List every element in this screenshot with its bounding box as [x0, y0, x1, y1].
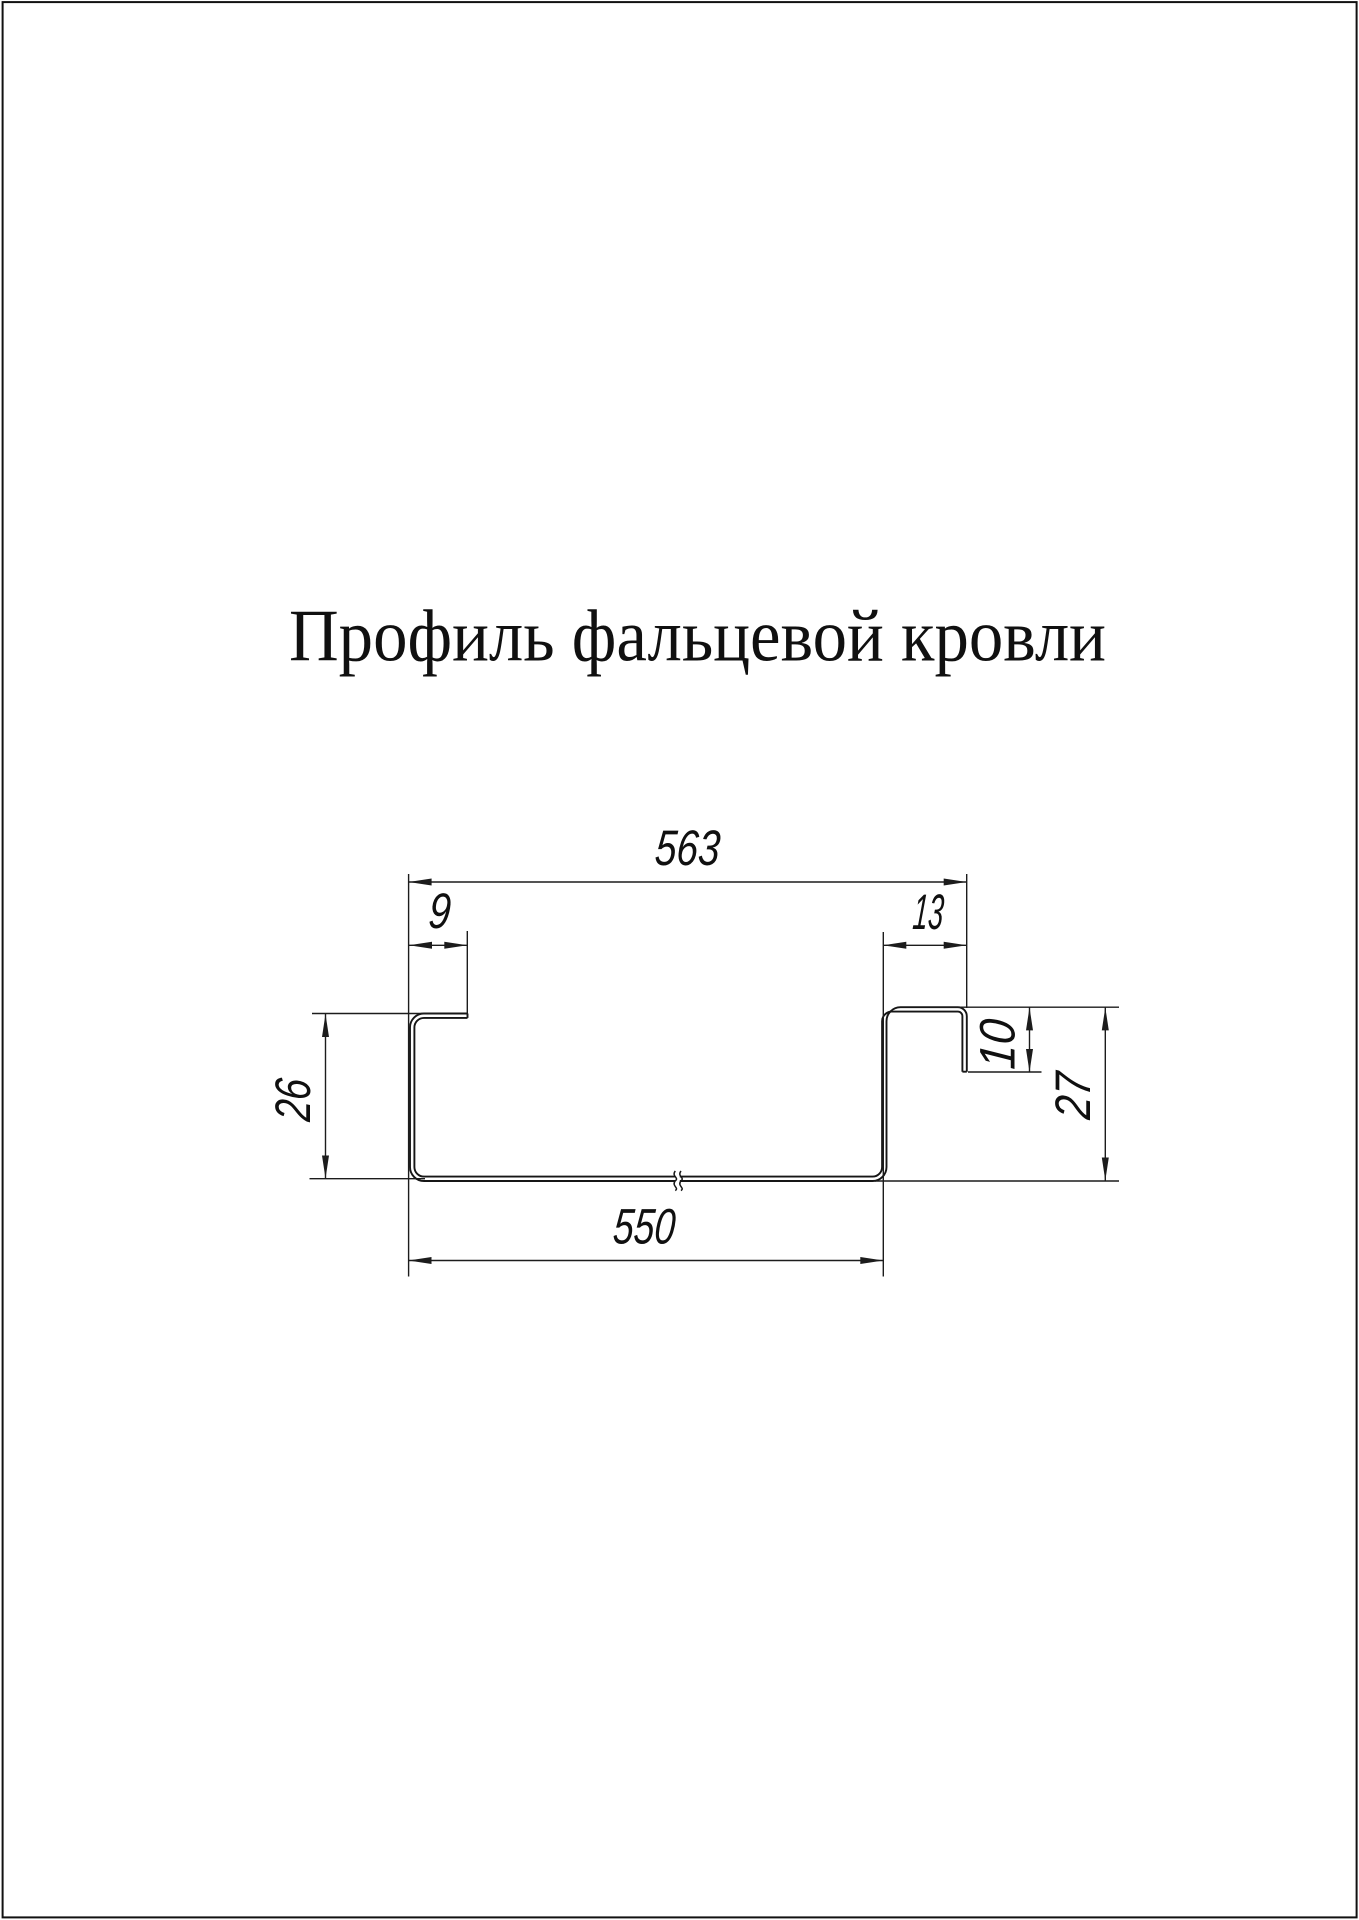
svg-text:Профиль фальцевой кровли: Профиль фальцевой кровли	[289, 595, 1106, 677]
svg-text:26: 26	[266, 1076, 321, 1124]
svg-text:10: 10	[970, 1017, 1026, 1071]
svg-text:9: 9	[427, 883, 453, 940]
svg-text:13: 13	[911, 883, 946, 940]
svg-text:550: 550	[611, 1199, 678, 1255]
svg-text:563: 563	[653, 819, 722, 876]
svg-text:27: 27	[1044, 1068, 1100, 1122]
